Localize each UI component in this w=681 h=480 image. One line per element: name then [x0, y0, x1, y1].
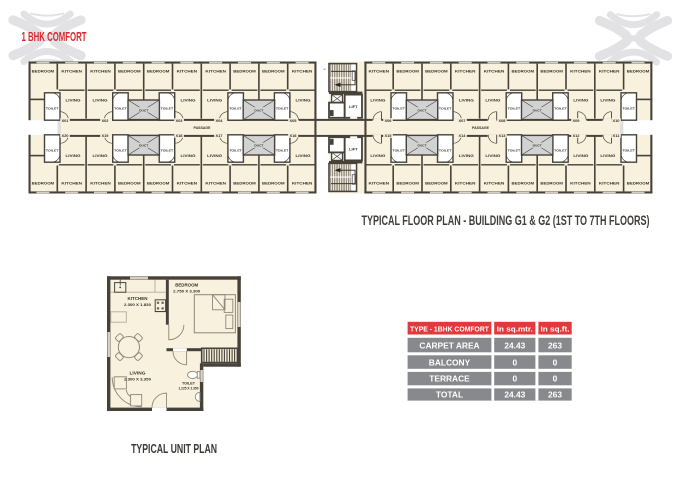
svg-text:LIVING: LIVING [66, 154, 81, 158]
svg-text:KITCHEN: KITCHEN [128, 296, 149, 301]
svg-text:TOILET: TOILET [554, 107, 567, 111]
svg-text:LIVING: LIVING [66, 99, 81, 103]
svg-text:X07: X07 [459, 119, 466, 123]
svg-text:2.750 X 3.300: 2.750 X 3.300 [173, 288, 201, 293]
svg-text:LIVING: LIVING [600, 99, 615, 103]
svg-text:KITCHEN: KITCHEN [292, 181, 313, 185]
svg-text:KITCHEN: KITCHEN [369, 181, 390, 185]
svg-text:BEDROOM: BEDROOM [175, 283, 198, 288]
svg-text:BALCONY: BALCONY [429, 357, 471, 367]
svg-text:X18: X18 [176, 134, 183, 138]
svg-text:TYPICAL UNIT PLAN: TYPICAL UNIT PLAN [131, 442, 217, 456]
svg-text:KITCHEN: KITCHEN [61, 70, 82, 74]
svg-text:KITCHEN: KITCHEN [570, 181, 591, 185]
svg-text:BEDROOM: BEDROOM [233, 181, 256, 185]
svg-text:In sq.mtr.: In sq.mtr. [497, 325, 533, 334]
svg-text:TOILET: TOILET [161, 149, 174, 153]
svg-text:BEDROOM: BEDROOM [147, 70, 170, 74]
svg-text:24.43: 24.43 [504, 340, 525, 350]
svg-text:TOILET: TOILET [622, 107, 635, 111]
svg-text:0: 0 [512, 357, 517, 367]
svg-text:LIVING: LIVING [459, 99, 474, 103]
svg-text:TYPICAL FLOOR PLAN - BUILDING: TYPICAL FLOOR PLAN - BUILDING G1 & G2 (1… [362, 213, 650, 229]
svg-text:BEDROOM: BEDROOM [540, 181, 563, 185]
svg-text:2.300 X 3.350: 2.300 X 3.350 [124, 376, 152, 381]
svg-text:0: 0 [553, 374, 558, 384]
svg-text:TOILET: TOILET [276, 107, 289, 111]
svg-text:X11: X11 [613, 134, 620, 138]
svg-text:KITCHEN: KITCHEN [369, 70, 390, 74]
svg-text:KITCHEN: KITCHEN [61, 181, 82, 185]
svg-text:LIVING: LIVING [296, 99, 311, 103]
svg-text:BEDROOM: BEDROOM [512, 181, 535, 185]
svg-text:KITCHEN: KITCHEN [205, 70, 226, 74]
svg-text:263: 263 [548, 340, 562, 350]
svg-text:PASSAGE: PASSAGE [472, 126, 490, 130]
svg-text:TOILET: TOILET [508, 107, 521, 111]
svg-text:CARPET AREA: CARPET AREA [419, 340, 479, 350]
svg-text:DUCT: DUCT [254, 144, 263, 148]
svg-text:KITCHEN: KITCHEN [292, 70, 313, 74]
svg-text:X04: X04 [216, 119, 223, 123]
svg-text:DUCT: DUCT [139, 144, 148, 148]
svg-text:TOILET: TOILET [229, 149, 242, 153]
svg-text:BEDROOM: BEDROOM [396, 70, 419, 74]
svg-text:BEDROOM: BEDROOM [32, 181, 55, 185]
svg-text:LIVING: LIVING [181, 99, 196, 103]
svg-text:LIVING: LIVING [207, 99, 222, 103]
svg-text:LIVING: LIVING [207, 154, 222, 158]
svg-text:TERRACE: TERRACE [429, 374, 470, 384]
svg-text:1.225 X 2.350: 1.225 X 2.350 [179, 387, 199, 391]
svg-text:KITCHEN: KITCHEN [484, 181, 505, 185]
svg-text:X13: X13 [499, 134, 506, 138]
svg-text:LIFT: LIFT [349, 147, 358, 151]
svg-text:BEDROOM: BEDROOM [147, 181, 170, 185]
svg-text:DUCT: DUCT [533, 108, 542, 112]
svg-text:X09: X09 [573, 119, 580, 123]
svg-text:X15: X15 [385, 134, 392, 138]
svg-text:DUCT: DUCT [254, 108, 263, 112]
svg-text:LIVING: LIVING [370, 99, 385, 103]
svg-text:TOILET: TOILET [276, 149, 289, 153]
svg-text:LIVING: LIVING [573, 154, 588, 158]
svg-text:X19: X19 [102, 134, 109, 138]
svg-text:X08: X08 [499, 119, 506, 123]
svg-text:KITCHEN: KITCHEN [205, 181, 226, 185]
svg-text:TOILET: TOILET [46, 107, 59, 111]
svg-text:KITCHEN: KITCHEN [455, 70, 476, 74]
svg-text:TOILET: TOILET [114, 107, 127, 111]
svg-text:BEDROOM: BEDROOM [425, 181, 448, 185]
svg-text:KITCHEN: KITCHEN [599, 181, 620, 185]
svg-text:X06: X06 [385, 119, 392, 123]
svg-text:In sq.ft.: In sq.ft. [541, 325, 570, 334]
svg-text:BEDROOM: BEDROOM [233, 70, 256, 74]
svg-text:BEDROOM: BEDROOM [32, 70, 55, 74]
svg-text:LIVING: LIVING [485, 154, 500, 158]
svg-text:TOILET: TOILET [392, 149, 405, 153]
svg-text:BEDROOM: BEDROOM [262, 70, 285, 74]
svg-text:DUCT: DUCT [418, 144, 427, 148]
svg-text:X14: X14 [459, 134, 466, 138]
svg-text:BEDROOM: BEDROOM [627, 181, 650, 185]
svg-text:KITCHEN: KITCHEN [599, 70, 620, 74]
svg-text:X20: X20 [62, 134, 69, 138]
svg-text:DUCT: DUCT [139, 108, 148, 112]
svg-text:PASSAGE: PASSAGE [194, 126, 212, 130]
svg-text:X10: X10 [613, 119, 620, 123]
svg-text:LIVING: LIVING [600, 154, 615, 158]
svg-text:LIFT: LIFT [349, 105, 358, 109]
svg-text:TOILET: TOILET [46, 149, 59, 153]
svg-text:BEDROOM: BEDROOM [396, 181, 419, 185]
svg-text:TOILET: TOILET [622, 149, 635, 153]
svg-text:TOILET: TOILET [161, 107, 174, 111]
svg-text:2.300 X 1.830: 2.300 X 1.830 [124, 302, 152, 307]
svg-text:X17: X17 [216, 134, 223, 138]
svg-text:X16: X16 [290, 134, 297, 138]
svg-text:DUCT: DUCT [533, 144, 542, 148]
svg-text:LIVING: LIVING [130, 370, 146, 375]
svg-text:LIVING: LIVING [485, 99, 500, 103]
svg-text:BEDROOM: BEDROOM [627, 70, 650, 74]
svg-text:24.43: 24.43 [504, 390, 525, 400]
svg-text:LIVING: LIVING [181, 154, 196, 158]
svg-text:BEDROOM: BEDROOM [118, 181, 141, 185]
svg-text:KITCHEN: KITCHEN [90, 70, 111, 74]
svg-text:LIVING: LIVING [459, 154, 474, 158]
svg-text:X03: X03 [176, 119, 183, 123]
svg-text:TOILET: TOILET [229, 107, 242, 111]
svg-text:LIVING: LIVING [296, 154, 311, 158]
svg-text:DUCT: DUCT [418, 108, 427, 112]
svg-text:X01: X01 [62, 119, 69, 123]
svg-text:TOILET: TOILET [439, 107, 452, 111]
svg-text:TOILET: TOILET [114, 149, 127, 153]
svg-text:X02: X02 [102, 119, 109, 123]
svg-text:TOILET: TOILET [439, 149, 452, 153]
svg-text:KITCHEN: KITCHEN [570, 70, 591, 74]
svg-text:KITCHEN: KITCHEN [90, 181, 111, 185]
svg-text:BEDROOM: BEDROOM [540, 70, 563, 74]
svg-text:TYPE - 1BHK COMFORT: TYPE - 1BHK COMFORT [410, 325, 489, 334]
svg-text:BEDROOM: BEDROOM [512, 70, 535, 74]
svg-text:LIVING: LIVING [93, 99, 108, 103]
svg-text:TOILET: TOILET [182, 381, 196, 385]
svg-text:X12: X12 [573, 134, 580, 138]
svg-text:LIVING: LIVING [93, 154, 108, 158]
svg-text:TOILET: TOILET [508, 149, 521, 153]
svg-text:0: 0 [553, 357, 558, 367]
svg-text:TOILET: TOILET [554, 149, 567, 153]
svg-text:LIVING: LIVING [370, 154, 385, 158]
svg-text:BEDROOM: BEDROOM [425, 70, 448, 74]
svg-text:0: 0 [512, 374, 517, 384]
svg-text:KITCHEN: KITCHEN [484, 70, 505, 74]
svg-text:TOILET: TOILET [392, 107, 405, 111]
svg-text:BEDROOM: BEDROOM [118, 70, 141, 74]
svg-text:BEDROOM: BEDROOM [262, 181, 285, 185]
svg-text:TOTAL: TOTAL [436, 390, 463, 400]
svg-text:X05: X05 [290, 119, 297, 123]
svg-text:263: 263 [548, 390, 562, 400]
svg-text:LIVING: LIVING [573, 99, 588, 103]
svg-text:KITCHEN: KITCHEN [177, 70, 198, 74]
svg-text:KITCHEN: KITCHEN [455, 181, 476, 185]
svg-text:KITCHEN: KITCHEN [177, 181, 198, 185]
svg-text:1 BHK COMFORT: 1 BHK COMFORT [22, 29, 87, 44]
